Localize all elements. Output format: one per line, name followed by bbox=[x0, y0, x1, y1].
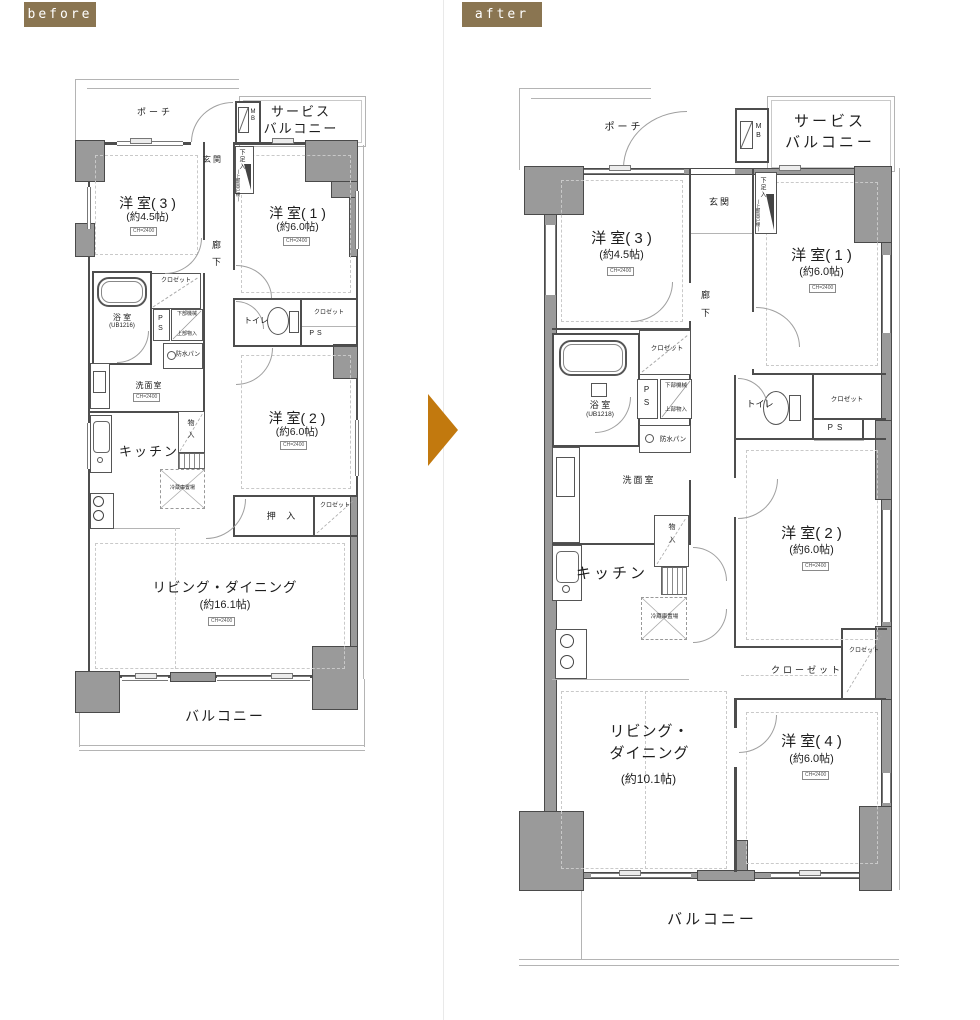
burner bbox=[93, 496, 104, 507]
burner bbox=[560, 634, 574, 648]
room2-size-label: (約6.0帖) bbox=[764, 544, 859, 557]
after-badge: after bbox=[462, 2, 542, 27]
door-arc bbox=[693, 547, 727, 581]
ps-label: PS bbox=[157, 315, 164, 335]
service-balcony-label: サービス bbox=[245, 105, 357, 120]
room3-label: 洋 室( 3 ) bbox=[100, 195, 195, 211]
upper-storage-label: 上部物入 bbox=[173, 332, 201, 338]
porch-outline bbox=[75, 79, 76, 141]
window bbox=[882, 255, 891, 333]
window bbox=[882, 773, 891, 803]
shoe-box-sub-label: (上部吊戸棚) bbox=[235, 169, 241, 202]
burner bbox=[93, 510, 104, 521]
shoe-box-label: 下足入 bbox=[237, 149, 246, 170]
dimension-tag bbox=[609, 165, 631, 171]
ps-label: PS bbox=[305, 330, 329, 338]
room1-size-label: (約6.0帖) bbox=[250, 221, 345, 233]
ceiling-tag: CH=2400 bbox=[133, 393, 160, 402]
wall bbox=[689, 168, 691, 283]
toilet-tank bbox=[289, 311, 299, 333]
closet-diagonal bbox=[639, 330, 691, 375]
dimension-tag bbox=[272, 138, 294, 144]
closet-diagonal bbox=[845, 632, 883, 696]
porch-outline bbox=[75, 79, 239, 80]
window bbox=[87, 187, 91, 229]
ceiling-tag: CH=2400 bbox=[283, 237, 310, 246]
porch-outline bbox=[87, 88, 239, 89]
window-sill bbox=[697, 870, 755, 881]
dimension-tag bbox=[799, 870, 821, 876]
toilet-tank bbox=[789, 395, 801, 421]
room3-size-label: (約4.5帖) bbox=[574, 249, 669, 262]
wall bbox=[734, 646, 843, 648]
bathtub bbox=[559, 340, 627, 376]
washbasin-bowl bbox=[93, 371, 106, 393]
wall bbox=[734, 375, 736, 440]
ceiling-tag: CH=2400 bbox=[280, 441, 307, 450]
room3-size-label: (約4.5帖) bbox=[105, 211, 190, 223]
waterproof-pan-label: 防水パン bbox=[656, 436, 690, 443]
wall bbox=[734, 517, 736, 648]
bath-model-label: (UB1218) bbox=[574, 411, 626, 418]
window bbox=[545, 225, 556, 295]
balcony-outline bbox=[581, 891, 582, 959]
burner bbox=[560, 655, 574, 669]
wall bbox=[203, 273, 205, 413]
drain-circle bbox=[645, 434, 654, 443]
meter-box-slash bbox=[740, 121, 753, 149]
service-balcony-label: バルコニー bbox=[769, 134, 891, 151]
bathtub bbox=[97, 277, 147, 307]
door-arc bbox=[165, 238, 202, 274]
fridge-label: 冷蔵庫置場 bbox=[642, 614, 687, 620]
toilet-label: トイレ bbox=[238, 316, 274, 325]
wall bbox=[235, 535, 358, 537]
kitchen-sink bbox=[93, 421, 110, 453]
ps-label: PS bbox=[642, 385, 651, 411]
balcony-outline bbox=[519, 959, 899, 960]
bath-model-label: (UB1216) bbox=[99, 323, 145, 330]
room3-label: 洋 室( 3 ) bbox=[564, 230, 679, 247]
window-sill bbox=[170, 672, 216, 682]
wall bbox=[812, 375, 814, 440]
washroom-label: 洗面室 bbox=[609, 475, 669, 485]
ceiling-tag: CH=2400 bbox=[130, 227, 157, 236]
porch-outline bbox=[519, 88, 651, 89]
living-dining-label: リビング・ bbox=[577, 723, 722, 740]
room2-label: 洋 室( 2 ) bbox=[247, 410, 347, 426]
storage-label: 物入 bbox=[666, 523, 676, 549]
wall bbox=[862, 420, 864, 440]
genkan-label: 玄関 bbox=[699, 197, 741, 207]
lower-machine-label: 下部機械 bbox=[173, 312, 201, 318]
room1-label: 洋 室( 1 ) bbox=[245, 205, 350, 221]
wall bbox=[734, 438, 736, 478]
living-dining-label: リビング・ダイニング bbox=[145, 580, 305, 596]
bath-label: 浴 室 bbox=[574, 400, 626, 410]
genkan-label: 玄関 bbox=[193, 155, 233, 164]
kitchen-label: キッチン bbox=[110, 445, 188, 460]
page: before after MB bbox=[0, 0, 980, 1020]
panel-divider bbox=[443, 0, 444, 1020]
wall bbox=[752, 168, 754, 312]
dimension-tag bbox=[779, 165, 801, 171]
wall bbox=[300, 298, 302, 347]
wall bbox=[689, 480, 691, 545]
wall bbox=[814, 418, 886, 420]
window bbox=[882, 510, 891, 622]
porch-label: ポーチ bbox=[574, 122, 674, 134]
window bbox=[584, 169, 684, 174]
washbasin-bowl bbox=[556, 457, 575, 497]
porch-label: ポーチ bbox=[105, 107, 205, 117]
service-balcony-label: バルコニー bbox=[241, 122, 361, 137]
closet-label: クロゼット bbox=[844, 648, 884, 655]
shoe-box-label: 下足入 bbox=[758, 177, 767, 198]
dimension-tag bbox=[271, 673, 293, 679]
mb-label: MB bbox=[755, 123, 762, 141]
wall bbox=[734, 767, 737, 872]
wall bbox=[233, 345, 358, 347]
counter-edge bbox=[552, 679, 689, 680]
balcony-outline bbox=[519, 965, 899, 966]
oshiire-label: 押 入 bbox=[253, 511, 313, 521]
partition bbox=[302, 326, 356, 327]
window bbox=[355, 420, 359, 476]
porch-outline bbox=[519, 88, 520, 170]
service-balcony-label: サービス bbox=[775, 113, 885, 130]
toilet-label: トイレ bbox=[741, 399, 779, 409]
floor-plan-before: MB bbox=[75, 75, 376, 767]
living-dining-size-label: (約10.1帖) bbox=[591, 773, 706, 787]
living-dining-size-label: (約16.1帖) bbox=[175, 599, 275, 612]
window bbox=[217, 676, 310, 681]
balcony-label: バルコニー bbox=[170, 708, 280, 724]
closet-label: クロゼット bbox=[303, 310, 355, 317]
door-arc bbox=[206, 499, 246, 539]
wall bbox=[754, 373, 886, 375]
wall bbox=[734, 698, 886, 700]
balcony-label: バルコニー bbox=[647, 911, 777, 928]
porch-outline bbox=[531, 98, 651, 99]
closet-label: クロゼット bbox=[315, 503, 355, 510]
floor-plan-after: MB bbox=[519, 85, 905, 980]
ceiling-tag: CH=2400 bbox=[809, 284, 836, 293]
wall bbox=[734, 700, 737, 728]
fridge-label: 冷蔵庫置場 bbox=[161, 486, 204, 492]
balcony-outline bbox=[364, 679, 365, 747]
entry-opening bbox=[691, 169, 735, 174]
balcony-outline bbox=[79, 745, 365, 746]
kitchen-label: キッチン bbox=[557, 565, 667, 582]
ceiling-tag: CH=2400 bbox=[607, 267, 634, 276]
before-after-arrow-icon bbox=[428, 394, 458, 466]
storage-label: 物入 bbox=[185, 419, 195, 443]
wall bbox=[235, 298, 358, 300]
wall bbox=[235, 495, 358, 497]
closet-label: クロゼット bbox=[155, 278, 197, 285]
genkan-step bbox=[691, 233, 753, 234]
room2-size-label: (約6.0帖) bbox=[253, 426, 341, 438]
bath-label: 浴 室 bbox=[99, 313, 145, 322]
closet-label: クロゼット bbox=[645, 345, 689, 352]
column bbox=[75, 223, 95, 257]
window bbox=[591, 873, 691, 878]
corridor-label: 廊下 bbox=[699, 290, 712, 326]
dimension-tag bbox=[619, 870, 641, 876]
window bbox=[355, 191, 359, 249]
door-arc bbox=[693, 609, 727, 643]
upper-storage-label: 上部物入 bbox=[662, 407, 690, 413]
waterproof-pan-label: 防水パン bbox=[173, 352, 203, 359]
facade-outline bbox=[899, 168, 900, 890]
wall bbox=[233, 298, 235, 347]
dimension-tag bbox=[135, 673, 157, 679]
ceiling-tag: CH=2400 bbox=[802, 562, 829, 571]
before-badge: before bbox=[24, 2, 96, 27]
lower-machine-label: 下部機械 bbox=[662, 383, 690, 389]
corridor-label: 廊下 bbox=[210, 240, 223, 274]
faucet bbox=[562, 585, 570, 593]
ceiling-tag: CH=2400 bbox=[208, 617, 235, 626]
room1-label: 洋 室( 1 ) bbox=[764, 247, 879, 264]
shoe-cabinet-wedge bbox=[765, 193, 775, 231]
room1-size-label: (約6.0帖) bbox=[774, 266, 869, 279]
entry-door-arc bbox=[623, 111, 687, 168]
shoe-box-sub-label: (上部吊戸棚) bbox=[755, 199, 761, 232]
column bbox=[75, 671, 120, 713]
closet-label: クロゼット bbox=[817, 396, 877, 403]
balcony-outline bbox=[79, 750, 365, 751]
dimension-tag bbox=[130, 138, 152, 144]
ps-label: PS bbox=[822, 423, 852, 432]
room2-label: 洋 室( 2 ) bbox=[754, 525, 869, 542]
washroom-label: 洗面室 bbox=[123, 381, 175, 390]
facade-outline bbox=[363, 145, 364, 679]
bath-counter bbox=[591, 383, 607, 397]
partition bbox=[814, 440, 864, 441]
room4-size-label: (約6.0帖) bbox=[764, 753, 859, 766]
ceiling-tag: CH=2400 bbox=[802, 771, 829, 780]
room4-label: 洋 室( 4 ) bbox=[754, 733, 869, 750]
living-dining-label: ダイニング bbox=[577, 745, 722, 762]
faucet bbox=[97, 457, 103, 463]
closet-long-label: クローゼット bbox=[747, 665, 867, 675]
